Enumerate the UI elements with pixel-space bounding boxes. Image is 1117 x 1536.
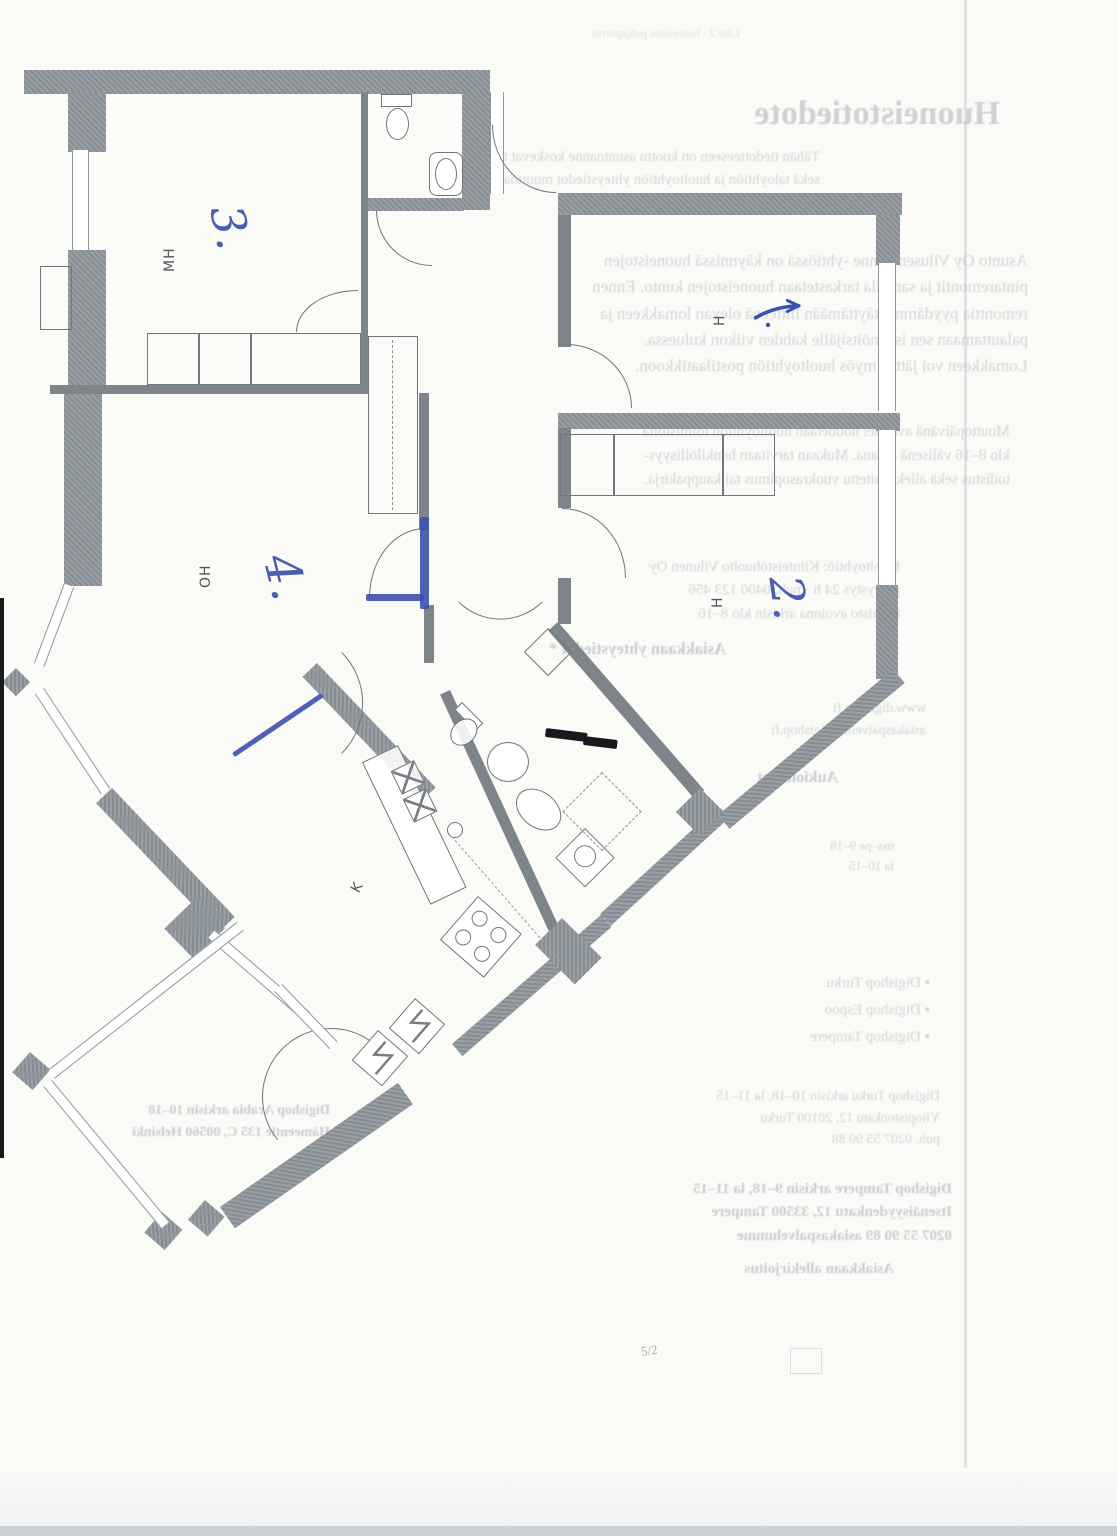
window-room2-right <box>878 430 896 585</box>
pencil-fraction: 5/2 <box>640 1342 659 1360</box>
lightning-icon <box>391 999 443 1051</box>
toilet-tank <box>381 94 412 107</box>
wall-room1-top <box>558 193 902 215</box>
bleed-line: Asiakkaan allekirjoitus <box>634 1258 894 1281</box>
wall-pillar-room2-right <box>876 585 898 679</box>
closet-hall-dashed <box>392 340 393 510</box>
bleed-paragraph: Digishop Tampere arkisin 9–18, la 11–15I… <box>592 1178 952 1248</box>
bleed-line: Liite 2 · huoneiston pohjapiirros <box>300 26 740 44</box>
wall-oh-sw <box>96 788 235 932</box>
wall-top <box>24 70 490 94</box>
door-arc-room2 <box>562 508 626 578</box>
wall-connector <box>424 605 434 663</box>
wall-room2-corner <box>718 669 905 829</box>
toilet-bowl <box>386 108 409 140</box>
wall-left-oh <box>64 392 102 586</box>
wall-mh-bottom <box>50 385 368 394</box>
room-label-h2: H <box>710 596 726 608</box>
wall-hall-left <box>361 92 368 392</box>
wall-pillar-right <box>876 413 900 431</box>
marker-stroke <box>545 728 588 742</box>
paper-crease <box>964 0 967 1536</box>
room-label-h1: H <box>712 314 728 326</box>
wall-left-upper <box>68 92 106 152</box>
wall-hall-oh-divider <box>419 393 429 530</box>
window-oh-sw <box>35 688 110 794</box>
closet-room2 <box>560 434 775 496</box>
room-label-mh: MH <box>162 247 178 272</box>
pen-door-line <box>366 594 424 601</box>
burner <box>471 943 494 966</box>
scan-edge <box>0 598 4 1158</box>
kitchen-faucet <box>447 822 463 838</box>
window-mh-left <box>72 150 89 250</box>
room-label-oh: OH <box>198 564 214 588</box>
desk-mh <box>40 266 72 330</box>
pen-mark-2: 2. <box>759 572 819 623</box>
pen-wall-line <box>232 693 324 757</box>
closet-mh <box>147 333 361 385</box>
pen-mark-1 <box>752 292 810 332</box>
closet-divider <box>613 434 615 496</box>
bottom-light-band <box>0 1468 1117 1526</box>
burner <box>487 924 510 947</box>
wall-left-mid <box>68 250 106 392</box>
faint-box <box>790 1348 822 1374</box>
burner <box>452 926 475 949</box>
room-label-k: K <box>348 879 367 896</box>
bleed-bullet-list: ▪ Digishop Turku▪ Digishop Espoo▪ Digish… <box>630 970 930 1051</box>
bleed-line: Aukioloajat <box>598 766 838 791</box>
wall-pillar-topright <box>876 215 900 265</box>
washbasin-round <box>487 742 529 782</box>
sink-basin <box>435 158 457 190</box>
washbasin-oval <box>508 780 570 839</box>
bottom-edge-strip <box>0 1526 1117 1536</box>
wall-balcony-end <box>188 1200 225 1237</box>
stove <box>440 896 522 978</box>
window-room1-right <box>878 263 896 411</box>
burner <box>468 907 491 930</box>
window-oh-corner <box>34 583 74 666</box>
closet-divider <box>250 333 252 385</box>
pen-mark-3: 3. <box>199 200 261 254</box>
oh-corner-pillar <box>2 668 30 696</box>
scanned-floor-plan-page: { "page": { "width": 1117, "height": 153… <box>0 0 1117 1536</box>
wall-wc-right <box>462 92 490 210</box>
door-arc-hall-blue <box>369 528 425 598</box>
closet-divider <box>722 434 724 496</box>
wall-room1-left <box>558 215 571 347</box>
bleed-paragraph: Digishop Turku arkisin 10–18, la 11–15Yl… <box>600 1086 940 1151</box>
bleed-title: Huoneistotiedote <box>620 88 1000 141</box>
closet-hall <box>368 336 418 514</box>
wall-room2-left-b <box>558 578 571 624</box>
wall-room1-bottom <box>558 413 900 429</box>
closet-divider <box>198 333 200 385</box>
balcony-rail-nw <box>48 922 244 1079</box>
